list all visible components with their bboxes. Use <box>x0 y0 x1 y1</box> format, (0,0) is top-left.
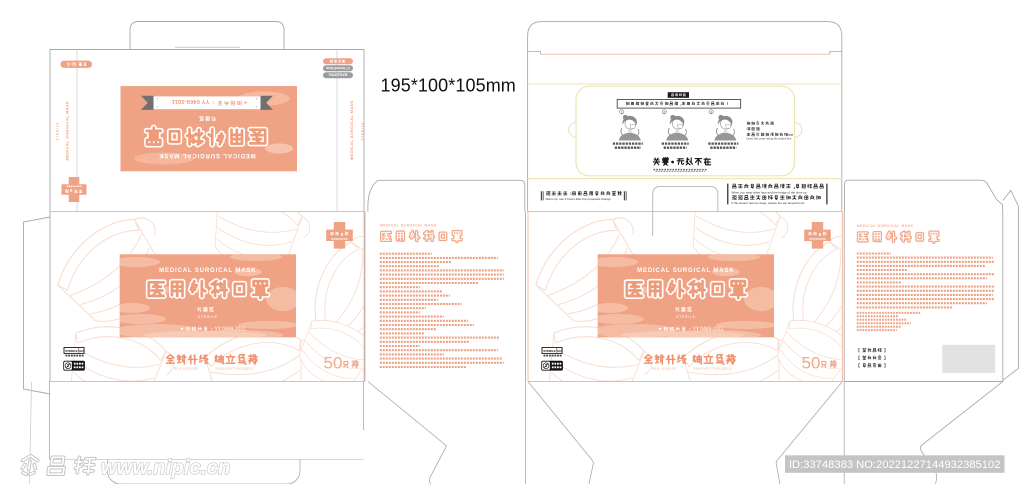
svg-text:STERILE: STERILE <box>65 349 77 353</box>
svg-text:MEDICAL SURGICAL MASK: MEDICAL SURGICAL MASK <box>637 268 734 274</box>
svg-text:New upgrade: New upgrade <box>652 367 677 371</box>
svg-text:When you wear white face and t: When you wear white face and the bridge … <box>732 190 807 194</box>
svg-text:Warm tip: use 4 hours after th: Warm tip: use 4 hours after the proposed… <box>546 197 611 201</box>
svg-text:MEDICAL SURGICAL MASK: MEDICAL SURGICAL MASK <box>65 101 69 161</box>
svg-text:YY 0469-2011: YY 0469-2011 <box>215 327 246 333</box>
svg-text:STERILE: STERILE <box>198 315 218 319</box>
svg-text:STERILE: STERILE <box>676 315 696 319</box>
svg-text:MEDICAL SURGICAL MASK: MEDICAL SURGICAL MASK <box>158 152 255 158</box>
svg-text:195*100*105mm: 195*100*105mm <box>381 76 516 96</box>
svg-text:MEDICAL SURGICAL MASK: MEDICAL SURGICAL MASK <box>380 224 437 228</box>
svg-text:STERILE: STERILE <box>56 122 60 141</box>
svg-text:ID:33748383 NO:202212271449323: ID:33748383 NO:20221227144932385102 <box>789 459 1001 471</box>
svg-text:Separate Packaging: Separate Packaging <box>215 367 253 371</box>
svg-text:www.nipic.cn: www.nipic.cn <box>101 457 230 479</box>
svg-text:If the wearer feel too large,: If the wearer feel too large, please the… <box>732 201 805 205</box>
svg-text:II: II <box>819 232 822 237</box>
svg-text:50: 50 <box>802 354 821 373</box>
svg-text:II: II <box>70 188 72 193</box>
svg-text:50: 50 <box>324 354 343 373</box>
svg-text:Open the cover along the dotte: Open the cover along the dotted line <box>746 137 792 141</box>
svg-text:YY 0469-2011: YY 0469-2011 <box>693 327 724 333</box>
svg-text:STERILE: STERILE <box>361 122 365 141</box>
svg-text:17.5cmx9.5cm: 17.5cmx9.5cm <box>326 66 350 70</box>
svg-text:MEDICAL SURGICAL MASK: MEDICAL SURGICAL MASK <box>159 268 256 274</box>
svg-text:2: 2 <box>663 110 665 114</box>
svg-text:50: 50 <box>71 61 77 66</box>
svg-text:BFE≥95%: BFE≥95% <box>328 73 347 78</box>
svg-text:1: 1 <box>621 110 623 114</box>
svg-text:MEDICAL SURGICAL MASK: MEDICAL SURGICAL MASK <box>350 100 354 160</box>
svg-text:MEDICAL SURGICAL MASK: MEDICAL SURGICAL MASK <box>857 224 914 228</box>
svg-text:STERILE: STERILE <box>543 349 555 353</box>
svg-text:YY 0469-2011: YY 0469-2011 <box>171 98 210 104</box>
svg-text:II: II <box>341 232 344 237</box>
svg-text:New upgrade: New upgrade <box>174 367 199 371</box>
svg-text:Separate Packaging: Separate Packaging <box>693 367 731 371</box>
svg-text:3: 3 <box>710 110 712 114</box>
